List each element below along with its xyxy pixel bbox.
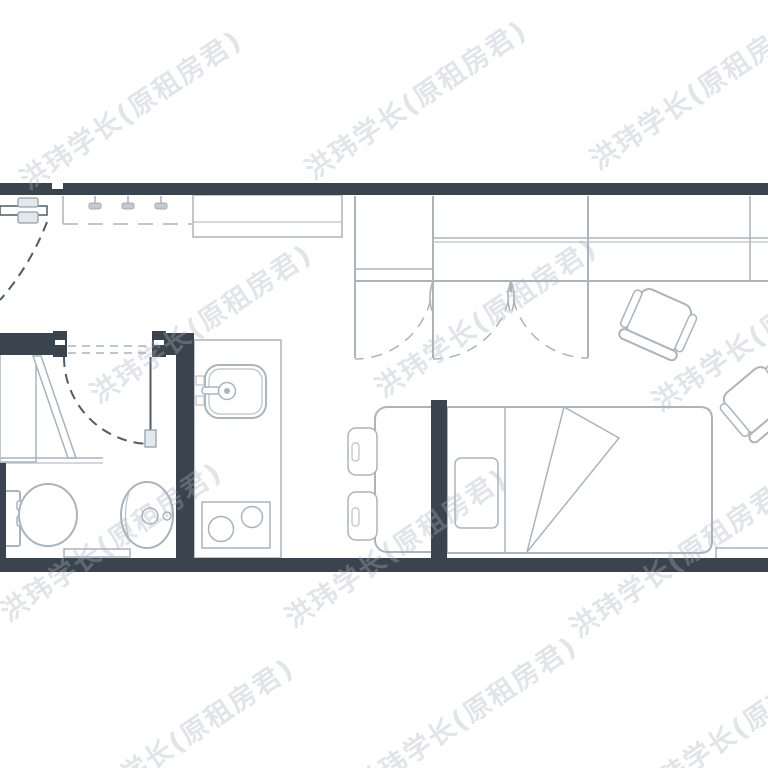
bathroom-door-icon (64, 357, 156, 447)
coat-hooks-icon (89, 196, 167, 209)
sliding-door-icon (68, 346, 150, 353)
bed-icon (447, 407, 712, 553)
bathroom-kitchen-wall (176, 333, 194, 572)
bath-mat-icon (64, 549, 130, 557)
entrance-door-icon (0, 198, 47, 300)
window-ledge-icon (716, 548, 768, 558)
bed-partition-wall (431, 400, 447, 558)
washbasin-icon (121, 482, 173, 548)
cooktop-icon (202, 502, 270, 548)
top-wall (0, 183, 768, 195)
bottom-wall (0, 558, 768, 572)
bathroom-wall-left (0, 333, 55, 355)
desk-chair-icon (615, 283, 700, 363)
kitchen-sink-icon (196, 365, 266, 418)
side-chair-icon (715, 359, 768, 446)
toilet-icon (3, 484, 77, 546)
shower-icon (0, 354, 103, 463)
overhead-shelf-icon (193, 195, 342, 237)
wardrobe-icon (355, 196, 768, 359)
floorplan-drawing (0, 0, 768, 768)
floorplan-image: 洪玮学长(原租房君)洪玮学长(原租房君)洪玮学长(原租房君)洪玮学长(原租房君)… (0, 0, 768, 768)
sofa-icon (348, 407, 445, 552)
left-wall (0, 463, 6, 558)
